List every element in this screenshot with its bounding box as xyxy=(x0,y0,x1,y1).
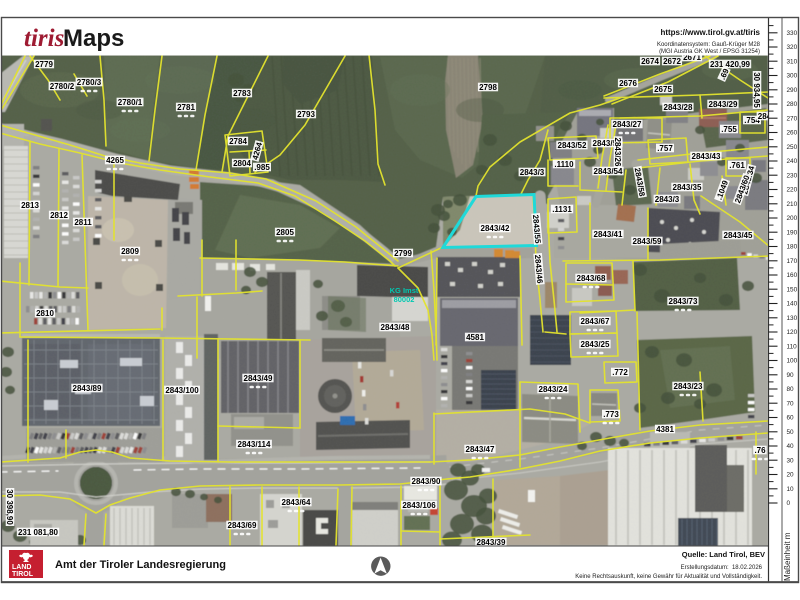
svg-text:2843/42: 2843/42 xyxy=(481,224,510,233)
svg-text:30 398,90: 30 398,90 xyxy=(5,489,14,525)
svg-text:290: 290 xyxy=(787,87,798,94)
svg-text:160: 160 xyxy=(787,272,798,279)
svg-text:2784: 2784 xyxy=(229,137,247,146)
svg-text:40: 40 xyxy=(787,443,795,450)
svg-text:210: 210 xyxy=(787,201,798,208)
svg-text:2781: 2781 xyxy=(177,103,195,112)
svg-text:4581: 4581 xyxy=(466,333,484,342)
svg-text:2843/3: 2843/3 xyxy=(520,168,545,177)
svg-text:.773: .773 xyxy=(603,410,619,419)
svg-text:4265: 4265 xyxy=(106,156,124,165)
svg-text:2843/27: 2843/27 xyxy=(613,120,642,129)
svg-text:2779: 2779 xyxy=(35,60,53,69)
svg-text:4381: 4381 xyxy=(656,425,674,434)
svg-text:200: 200 xyxy=(787,215,798,222)
svg-text:250: 250 xyxy=(787,144,798,151)
svg-text:.761: .761 xyxy=(729,161,745,170)
svg-text:2843/25: 2843/25 xyxy=(581,340,610,349)
svg-text:110: 110 xyxy=(787,343,798,350)
svg-text:.757: .757 xyxy=(657,144,673,153)
svg-text:Maßeinheit m: Maßeinheit m xyxy=(783,532,792,581)
svg-text:230: 230 xyxy=(787,172,798,179)
svg-text:90: 90 xyxy=(787,372,795,379)
svg-text:280: 280 xyxy=(787,101,798,108)
svg-text:.755: .755 xyxy=(721,125,737,134)
svg-text:2672: 2672 xyxy=(663,57,681,66)
svg-text:Koordinatensystem: Gauß-Krüger: Koordinatensystem: Gauß-Krüger M28 xyxy=(657,42,761,48)
svg-text:2811: 2811 xyxy=(74,218,92,227)
svg-text:2843/89: 2843/89 xyxy=(73,384,102,393)
svg-text:50: 50 xyxy=(787,429,795,436)
svg-text:120: 120 xyxy=(787,329,798,336)
svg-text:2843/68: 2843/68 xyxy=(577,274,606,283)
svg-text:2804: 2804 xyxy=(233,159,251,168)
svg-text:2843/47: 2843/47 xyxy=(466,445,495,454)
svg-text:Erstellungsdatum: 18.02.2026: Erstellungsdatum: 18.02.2026 xyxy=(681,565,763,571)
svg-text:Maps: Maps xyxy=(63,25,124,52)
svg-text:270: 270 xyxy=(787,116,798,123)
svg-text:.76: .76 xyxy=(754,446,766,455)
svg-text:300: 300 xyxy=(787,73,798,80)
svg-text:2674: 2674 xyxy=(641,57,659,66)
svg-text:Keine Rechtsauskunft, keine Ge: Keine Rechtsauskunft, keine Gewähr für A… xyxy=(575,574,762,580)
svg-text:2780/2: 2780/2 xyxy=(50,82,75,91)
svg-text:10: 10 xyxy=(787,486,795,493)
svg-text:2843/28: 2843/28 xyxy=(664,103,693,112)
svg-text:2843/106: 2843/106 xyxy=(402,501,436,510)
svg-text:2809: 2809 xyxy=(121,247,139,256)
svg-text:260: 260 xyxy=(787,130,798,137)
svg-text:2843/52: 2843/52 xyxy=(558,141,587,150)
svg-text:2812: 2812 xyxy=(50,211,68,220)
svg-text:30: 30 xyxy=(787,457,795,464)
svg-text:150: 150 xyxy=(787,286,798,293)
svg-text:2843/64: 2843/64 xyxy=(282,498,311,507)
svg-text:240: 240 xyxy=(787,158,798,165)
svg-text:2843/69: 2843/69 xyxy=(228,521,257,530)
svg-text:2843/100: 2843/100 xyxy=(165,386,199,395)
svg-text:Amt der Tiroler Landesregierun: Amt der Tiroler Landesregierung xyxy=(55,559,226,571)
svg-text:220: 220 xyxy=(787,187,798,194)
svg-text:2675: 2675 xyxy=(654,85,672,94)
svg-text:2780/1: 2780/1 xyxy=(118,98,143,107)
svg-text:170: 170 xyxy=(787,258,798,265)
svg-text:2843/35: 2843/35 xyxy=(673,183,702,192)
svg-text:.1110: .1110 xyxy=(554,160,574,169)
svg-text:190: 190 xyxy=(787,229,798,236)
svg-text:2843/41: 2843/41 xyxy=(594,230,623,239)
svg-text:0: 0 xyxy=(787,500,791,507)
svg-text:2843/23: 2843/23 xyxy=(674,382,703,391)
svg-text:2843/43: 2843/43 xyxy=(692,152,721,161)
svg-text:100: 100 xyxy=(787,358,798,365)
svg-text:80002: 80002 xyxy=(394,295,415,304)
svg-text:2793: 2793 xyxy=(297,110,315,119)
svg-text:2813: 2813 xyxy=(21,201,39,210)
svg-text:2798: 2798 xyxy=(479,83,497,92)
svg-text:(MGI Austria GK West / EPSG 31: (MGI Austria GK West / EPSG 31254) xyxy=(659,49,760,55)
svg-text:2810: 2810 xyxy=(36,309,54,318)
svg-text:2843/114: 2843/114 xyxy=(238,440,271,449)
svg-text:231 420,99: 231 420,99 xyxy=(710,60,751,69)
svg-text:TIROL: TIROL xyxy=(12,571,34,578)
svg-text:60: 60 xyxy=(787,415,795,422)
svg-text:2843/3: 2843/3 xyxy=(655,195,680,204)
svg-text:2843/49: 2843/49 xyxy=(244,374,273,383)
svg-text:.1131: .1131 xyxy=(552,205,572,214)
svg-text:231 081,80: 231 081,80 xyxy=(18,528,59,537)
svg-text:tiris: tiris xyxy=(24,25,64,52)
svg-text:2676: 2676 xyxy=(619,79,637,88)
svg-text:2843/29: 2843/29 xyxy=(709,100,738,109)
svg-text:2843/90: 2843/90 xyxy=(412,477,441,486)
svg-text:2843/54: 2843/54 xyxy=(594,167,623,176)
svg-text:330: 330 xyxy=(787,30,798,37)
svg-text:2843/45: 2843/45 xyxy=(724,231,753,240)
svg-text:2805: 2805 xyxy=(276,228,294,237)
svg-text:https://www.tirol.gv.at/tiris: https://www.tirol.gv.at/tiris xyxy=(660,28,760,37)
svg-text:LAND: LAND xyxy=(12,564,31,571)
svg-text:2843/26: 2843/26 xyxy=(613,138,622,167)
svg-text:2843/67: 2843/67 xyxy=(581,317,610,326)
svg-text:140: 140 xyxy=(787,301,798,308)
svg-text:2783: 2783 xyxy=(233,89,251,98)
svg-text:2780/3: 2780/3 xyxy=(77,78,102,87)
svg-text:320: 320 xyxy=(787,44,798,51)
svg-text:.772: .772 xyxy=(612,368,628,377)
svg-text:310: 310 xyxy=(787,59,798,66)
svg-text:130: 130 xyxy=(787,315,798,322)
svg-text:.985: .985 xyxy=(254,163,270,172)
svg-text:2843/59: 2843/59 xyxy=(633,237,662,246)
svg-text:20: 20 xyxy=(787,472,795,479)
svg-text:80: 80 xyxy=(787,386,795,393)
svg-text:2843/24: 2843/24 xyxy=(539,385,568,394)
svg-text:2799: 2799 xyxy=(394,249,412,258)
svg-text:70: 70 xyxy=(787,400,795,407)
svg-text:180: 180 xyxy=(787,244,798,251)
svg-text:30 934,95: 30 934,95 xyxy=(752,72,761,108)
svg-text:KG Imst: KG Imst xyxy=(390,286,419,295)
svg-text:Quelle: Land Tirol, BEV: Quelle: Land Tirol, BEV xyxy=(682,550,765,559)
svg-text:2843/48: 2843/48 xyxy=(381,323,410,332)
svg-text:2843/73: 2843/73 xyxy=(669,297,698,306)
